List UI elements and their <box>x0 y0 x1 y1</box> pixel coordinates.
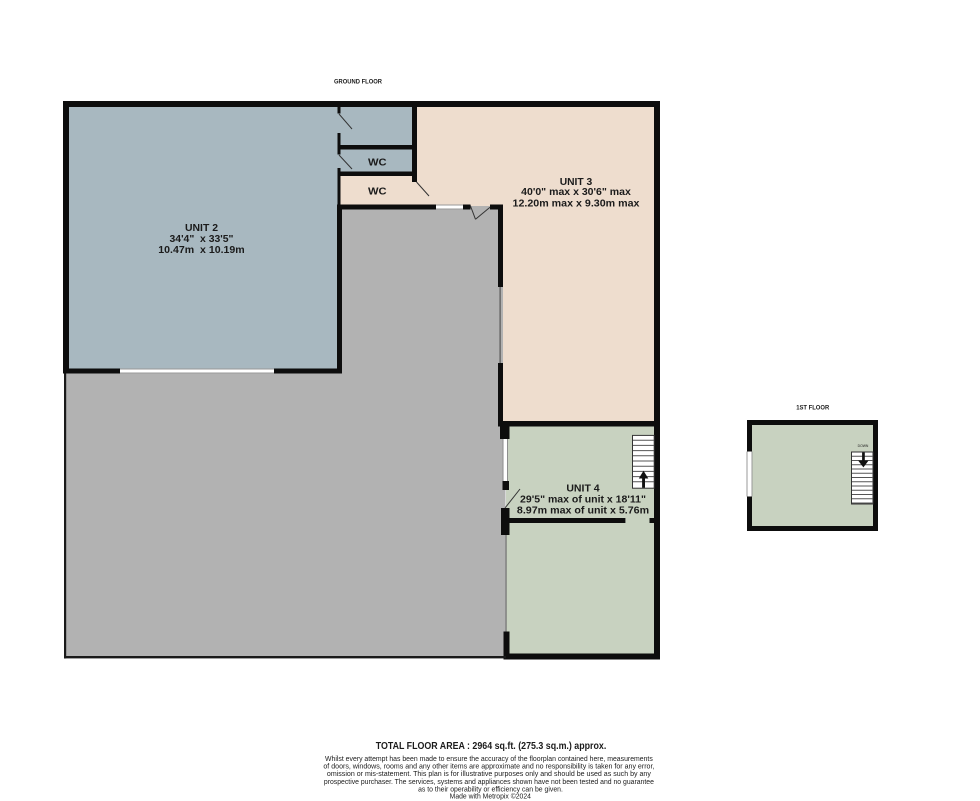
svg-text:WC: WC <box>368 157 387 169</box>
svg-text:WC: WC <box>368 186 387 198</box>
svg-text:TOTAL FLOOR AREA : 2964 sq.ft.: TOTAL FLOOR AREA : 2964 sq.ft. (275.3 sq… <box>376 741 607 752</box>
svg-text:omission or mis-statement. Thi: omission or mis-statement. This plan is … <box>327 771 651 778</box>
svg-text:12.20m max x 9.30m max: 12.20m max x 9.30m max <box>513 198 640 210</box>
svg-text:10.47m x 10.19m: 10.47m x 10.19m <box>158 244 244 256</box>
svg-text:GROUND FLOOR: GROUND FLOOR <box>334 79 382 86</box>
svg-text:8.97m max of unit x 5.76m: 8.97m max of unit x 5.76m <box>517 505 649 517</box>
svg-text:Made with Metropix ©2024: Made with Metropix ©2024 <box>450 793 531 801</box>
svg-text:of doors, windows, rooms and a: of doors, windows, rooms and any other i… <box>323 764 654 771</box>
svg-text:29'5" max of unit x 18'11": 29'5" max of unit x 18'11" <box>520 493 646 505</box>
svg-text:40'0" max x 30'6" max: 40'0" max x 30'6" max <box>521 186 631 198</box>
svg-text:DOWN: DOWN <box>858 444 869 448</box>
svg-text:prospective purchaser. The ser: prospective purchaser. The services, sys… <box>324 779 654 786</box>
svg-text:as to their operability or eff: as to their operability or efficiency ca… <box>418 786 563 793</box>
svg-text:Whilst every attempt has been: Whilst every attempt has been made to en… <box>325 756 653 763</box>
svg-text:1ST FLOOR: 1ST FLOOR <box>796 405 829 412</box>
svg-text:UNIT 2: UNIT 2 <box>185 222 218 234</box>
